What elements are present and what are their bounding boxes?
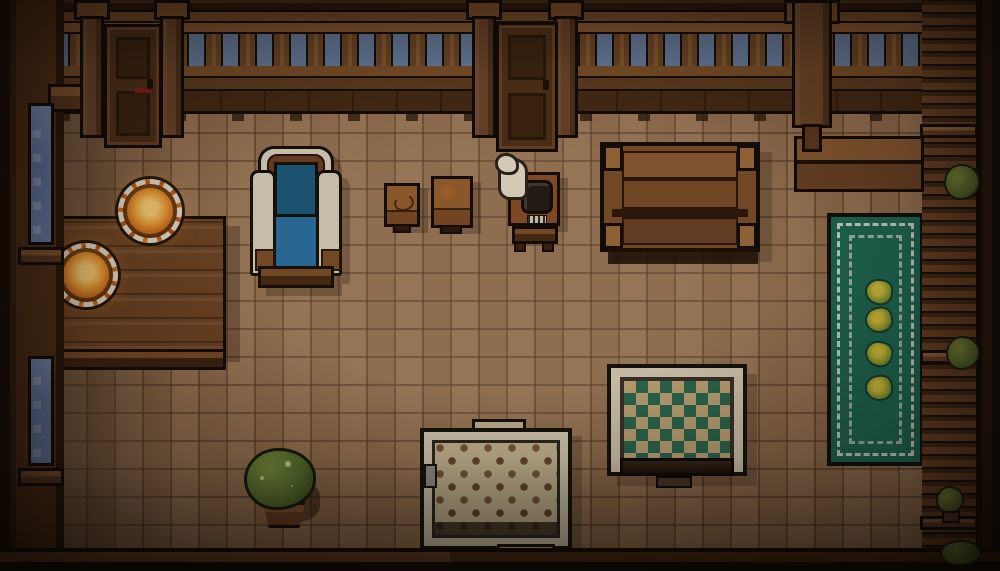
wooden-bench[interactable] bbox=[600, 142, 760, 252]
crate-base bbox=[393, 224, 411, 233]
rug-flower-icon bbox=[866, 376, 892, 400]
dark-bench-under-rug bbox=[620, 458, 734, 476]
shelf-plant-pot bbox=[942, 511, 960, 523]
rug-flower-icon bbox=[865, 307, 892, 333]
dotted-rug-field bbox=[432, 440, 560, 538]
counter-base bbox=[56, 352, 226, 370]
bench-post bbox=[603, 223, 623, 249]
support-post bbox=[472, 16, 496, 138]
rug-tab-top bbox=[472, 419, 526, 431]
large-crate[interactable] bbox=[431, 176, 473, 228]
door-latch bbox=[135, 88, 151, 93]
blue-armchair[interactable] bbox=[250, 146, 342, 288]
food-plate[interactable] bbox=[118, 179, 182, 243]
bench-plank bbox=[622, 179, 738, 209]
potted-plant[interactable] bbox=[242, 450, 326, 534]
chair-armrest bbox=[250, 170, 276, 276]
chair-backrest bbox=[274, 162, 318, 218]
small-crate[interactable] bbox=[384, 183, 420, 227]
door-panel bbox=[116, 37, 150, 79]
rug-tab-left bbox=[424, 464, 437, 488]
dotted-rug bbox=[420, 428, 572, 550]
chair-footboard bbox=[258, 266, 334, 288]
bottom-wall bbox=[0, 548, 1000, 571]
rug-flower-icon bbox=[866, 279, 893, 304]
game-scene bbox=[0, 0, 1000, 571]
rug-foot-tab bbox=[656, 476, 692, 488]
window-sill bbox=[18, 468, 64, 486]
chair-armrest bbox=[316, 170, 342, 276]
door-handle-icon bbox=[147, 79, 153, 89]
bench-post bbox=[737, 145, 757, 171]
steam-icon bbox=[498, 158, 528, 200]
crate-base bbox=[440, 225, 462, 234]
bench-plank bbox=[622, 151, 738, 179]
door-panel bbox=[508, 93, 546, 140]
window-sill bbox=[18, 247, 64, 265]
diamond-rug-field bbox=[620, 377, 734, 463]
support-post bbox=[80, 16, 104, 138]
door-handle-icon bbox=[543, 80, 549, 90]
post-foot bbox=[802, 124, 822, 152]
shelf-board bbox=[920, 124, 978, 138]
left-door[interactable] bbox=[104, 24, 162, 148]
door-panel bbox=[508, 35, 546, 80]
rug-flower-icon bbox=[865, 340, 894, 367]
right-wall bbox=[922, 0, 1000, 571]
stove-leg bbox=[514, 242, 526, 252]
stove-table[interactable] bbox=[502, 166, 560, 250]
large-support-post bbox=[792, 0, 832, 128]
window bbox=[28, 356, 54, 466]
window bbox=[28, 103, 54, 245]
bench-gap bbox=[612, 209, 748, 217]
green-runner-rug bbox=[827, 213, 924, 466]
bench-shadow bbox=[608, 248, 758, 264]
door-panel bbox=[116, 91, 150, 136]
chair-seat bbox=[270, 214, 322, 272]
support-post bbox=[160, 16, 184, 138]
bench-plank bbox=[622, 217, 738, 245]
stove-leg bbox=[542, 242, 554, 252]
stove-label bbox=[527, 215, 547, 224]
bench-post bbox=[737, 223, 757, 249]
center-door[interactable] bbox=[496, 22, 558, 152]
bench-post bbox=[603, 145, 623, 171]
